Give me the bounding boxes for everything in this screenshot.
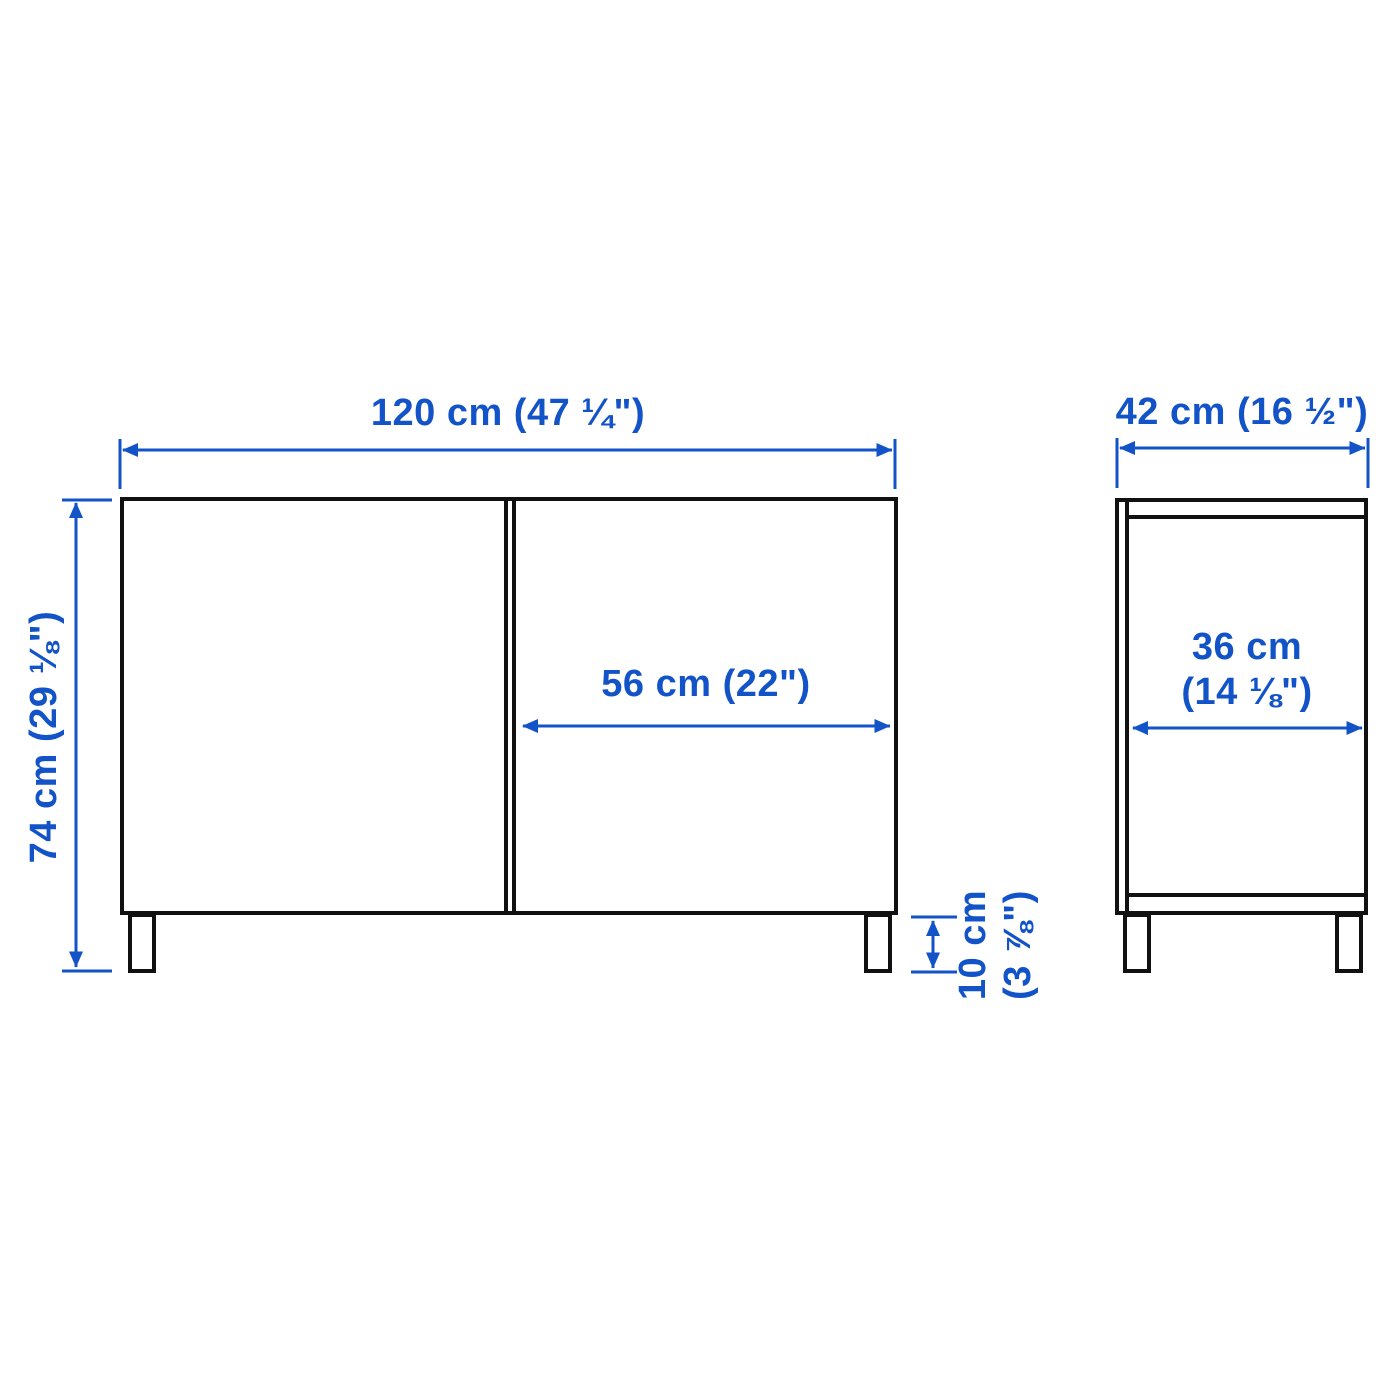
overall-width-label: 120 cm (47 ¼") [108,392,908,434]
front-left-leg [130,915,154,971]
door-width-label: 56 cm (22") [506,663,906,705]
side-front-leg [1125,915,1149,971]
front-right-leg [866,915,890,971]
leg-height-label-line1: 10 cm [951,890,996,1000]
side-view-outline [1117,500,1366,971]
leg-height-label: 10 cm (3 ⅞") [951,890,1041,1000]
front-view-outline [122,499,896,971]
inner-depth-label: 36 cm (14 ⅛") [1097,625,1397,715]
leg-height-label-line2: (3 ⅞") [996,890,1041,1000]
inner-depth-label-line1: 36 cm [1097,625,1397,670]
overall-depth-label: 42 cm (16 ½") [1082,391,1400,433]
dimension-diagram: 120 cm (47 ¼") 42 cm (16 ½") 74 cm (29 ⅛… [0,0,1400,1400]
overall-height-label: 74 cm (29 ⅛") [23,611,65,864]
inner-depth-label-line2: (14 ⅛") [1097,670,1397,715]
front-cabinet-body [122,499,896,913]
side-back-leg [1337,915,1361,971]
